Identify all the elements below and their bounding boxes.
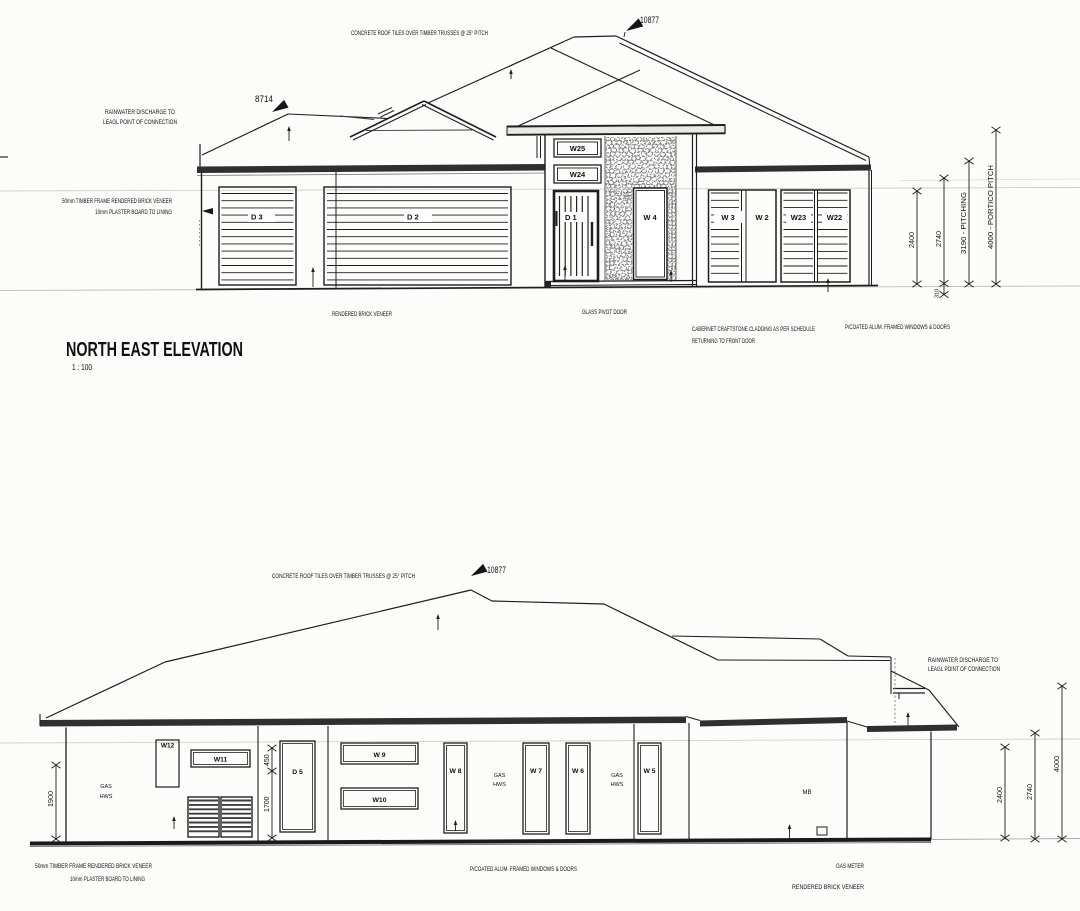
svg-text:2400: 2400	[907, 232, 916, 248]
svg-text:W 3: W 3	[721, 213, 734, 222]
svg-text:W23: W23	[791, 213, 806, 222]
svg-text:3190 - PITCHING: 3190 - PITCHING	[961, 192, 968, 254]
svg-text:2740: 2740	[934, 231, 943, 247]
svg-text:GAS: GAS	[611, 773, 623, 779]
svg-text:P/COATED ALUM. FRAMED WINDOWS: P/COATED ALUM. FRAMED WINDOWS & DOORS	[845, 324, 950, 331]
svg-text:1700: 1700	[264, 796, 271, 812]
svg-text:W 7: W 7	[530, 768, 542, 775]
svg-text:D 3: D 3	[251, 213, 263, 222]
svg-text:D 5: D 5	[292, 769, 303, 776]
svg-text:W12: W12	[161, 743, 175, 750]
svg-text:W 5: W 5	[643, 768, 655, 775]
svg-text:W 6: W 6	[572, 768, 584, 775]
svg-text:NORTH EAST ELEVATION: NORTH EAST ELEVATION	[66, 339, 243, 361]
svg-text:LEAGL POINT OF CONNECTION: LEAGL POINT OF CONNECTION	[928, 666, 1000, 673]
svg-text:W22: W22	[827, 213, 842, 222]
svg-text:10877: 10877	[640, 15, 659, 25]
svg-text:10mm PLASTER BOARD TO LINING: 10mm PLASTER BOARD TO LINING	[95, 209, 172, 216]
svg-text:50mm TIMBER FRAME RENDERED BRI: 50mm TIMBER FRAME RENDERED BRICK VENEER	[62, 198, 172, 205]
svg-text:2740: 2740	[1025, 784, 1034, 800]
svg-text:GAS: GAS	[494, 773, 506, 779]
svg-text:GAS METER: GAS METER	[836, 863, 864, 870]
svg-text:W11: W11	[214, 757, 228, 764]
svg-text:D 1: D 1	[565, 213, 577, 222]
svg-text:W 9: W 9	[373, 752, 385, 759]
svg-text:1 : 100: 1 : 100	[72, 363, 92, 372]
svg-text:RENDERED BRICK VENEER: RENDERED BRICK VENEER	[332, 311, 392, 318]
svg-text:W 8: W 8	[449, 768, 461, 775]
svg-text:W10: W10	[373, 797, 387, 804]
svg-text:MB: MB	[803, 790, 812, 796]
svg-text:4000 - PORTICO PITCH: 4000 - PORTICO PITCH	[988, 165, 995, 249]
svg-text:HWS: HWS	[493, 782, 506, 788]
svg-text:W 4: W 4	[643, 213, 657, 222]
svg-text:10877: 10877	[487, 565, 506, 575]
svg-text:310: 310	[935, 289, 941, 298]
svg-text:1900: 1900	[46, 791, 55, 807]
svg-text:W24: W24	[570, 170, 586, 179]
svg-text:RAINWATER DISCHARGE TO: RAINWATER DISCHARGE TO	[928, 657, 998, 664]
svg-text:RAINWATER DISCHARGE TO: RAINWATER DISCHARGE TO	[105, 109, 175, 116]
svg-text:HWS: HWS	[100, 794, 113, 800]
svg-text:2400: 2400	[995, 787, 1004, 803]
svg-text:W25: W25	[570, 144, 585, 153]
svg-text:CONCRETE ROOF TILES OVER TIMBE: CONCRETE ROOF TILES OVER TIMBER TRUSSES …	[351, 30, 488, 37]
svg-text:RENDERED BRICK VENEER: RENDERED BRICK VENEER	[792, 884, 864, 891]
svg-text:LEAGL POINT OF CONNECTION: LEAGL POINT OF CONNECTION	[103, 119, 177, 126]
svg-text:D 2: D 2	[407, 213, 419, 222]
svg-text:HWS: HWS	[611, 782, 624, 788]
svg-text:450: 450	[264, 754, 271, 766]
svg-text:W 2: W 2	[755, 213, 768, 222]
svg-text:GLASS PIVOT DOOR: GLASS PIVOT DOOR	[582, 309, 627, 316]
svg-text:4000: 4000	[1052, 756, 1061, 772]
svg-text:50mm TIMBER FRAME RENDERED BRI: 50mm TIMBER FRAME RENDERED BRICK VENEER	[35, 863, 152, 870]
svg-text:GAS: GAS	[100, 784, 112, 790]
svg-text:10mm PLASTER BOARD TO LINING: 10mm PLASTER BOARD TO LINING	[70, 876, 145, 883]
svg-text:8714: 8714	[255, 94, 273, 104]
svg-text:RETURNING TO FRONT DOOR: RETURNING TO FRONT DOOR	[692, 338, 755, 345]
svg-text:CABERNET CRAFTSTONE CLADDING A: CABERNET CRAFTSTONE CLADDING AS PER SCHE…	[692, 326, 815, 333]
svg-text:CONCRETE ROOF TILES OVER TIMBE: CONCRETE ROOF TILES OVER TIMBER TRUSSES …	[272, 573, 415, 580]
svg-text:P/COATED ALUM. FRAMED WINDOWS: P/COATED ALUM. FRAMED WINDOWS & DOORS	[470, 866, 577, 873]
